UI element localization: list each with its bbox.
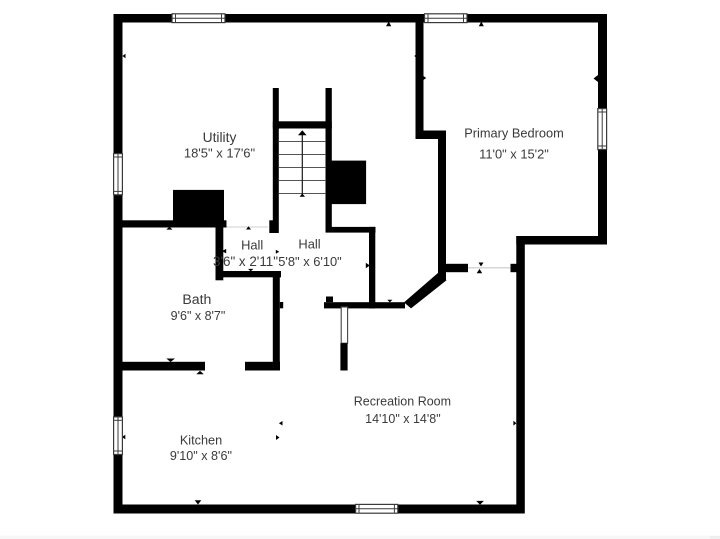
svg-text:14'10" x 14'8": 14'10" x 14'8"	[365, 412, 441, 426]
svg-text:Utility: Utility	[203, 130, 237, 145]
svg-text:Hall: Hall	[241, 238, 263, 253]
svg-text:18'5" x 17'6": 18'5" x 17'6"	[184, 146, 256, 161]
svg-text:3'6" x 2'11": 3'6" x 2'11"	[213, 254, 278, 269]
svg-text:5'8" x 6'10": 5'8" x 6'10"	[278, 254, 342, 269]
svg-text:Kitchen: Kitchen	[180, 434, 222, 448]
svg-text:11'0" x 15'2": 11'0" x 15'2"	[479, 146, 549, 161]
svg-text:Bath: Bath	[182, 291, 211, 307]
svg-text:Hall: Hall	[298, 237, 320, 252]
svg-text:9'6" x 8'7": 9'6" x 8'7"	[171, 309, 226, 323]
svg-text:Recreation Room: Recreation Room	[354, 395, 451, 409]
svg-text:Primary Bedroom: Primary Bedroom	[464, 126, 564, 141]
svg-text:9'10" x 8'6": 9'10" x 8'6"	[170, 449, 232, 463]
